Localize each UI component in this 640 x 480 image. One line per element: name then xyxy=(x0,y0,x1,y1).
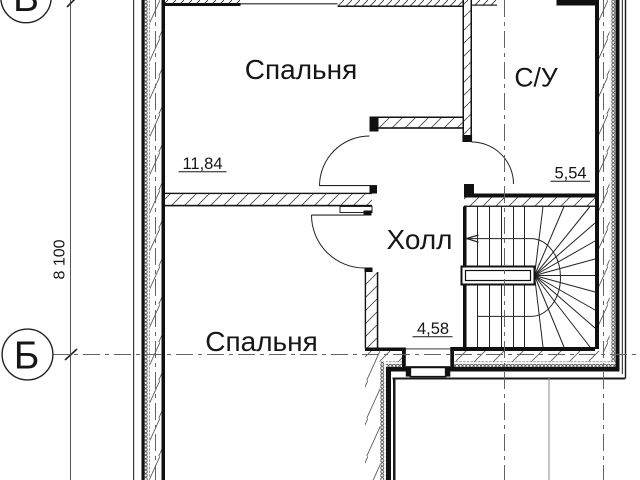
svg-text:Холл: Холл xyxy=(387,224,453,255)
svg-text:8 100: 8 100 xyxy=(52,239,69,279)
svg-text:4,58: 4,58 xyxy=(417,320,449,338)
svg-text:11,84: 11,84 xyxy=(182,155,222,173)
svg-text:Спальня: Спальня xyxy=(205,326,318,357)
svg-text:В: В xyxy=(13,0,39,20)
svg-text:Б: Б xyxy=(14,335,40,378)
svg-text:С/У: С/У xyxy=(514,63,558,93)
svg-text:5,54: 5,54 xyxy=(554,165,586,183)
svg-text:Спальня: Спальня xyxy=(245,54,358,85)
